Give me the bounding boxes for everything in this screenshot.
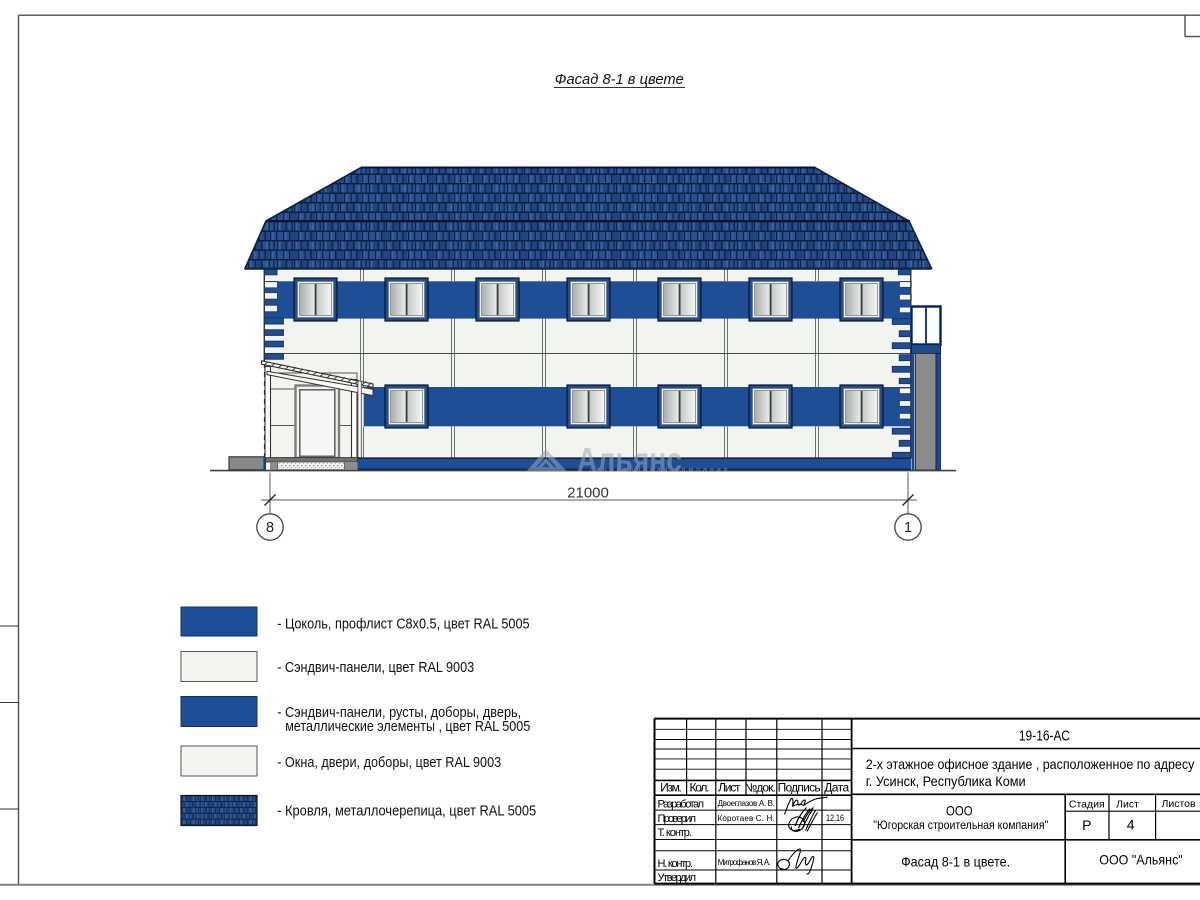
- svg-text:Листов: Листов: [1161, 798, 1196, 810]
- svg-text:Т. контр.: Т. контр.: [658, 827, 692, 839]
- svg-text:Н. контр.: Н. контр.: [658, 858, 694, 870]
- svg-text:строительная компания: строительная компания: [590, 467, 731, 474]
- svg-text:Кол.: Кол.: [690, 781, 710, 795]
- svg-text:Утвердил: Утвердил: [658, 872, 697, 884]
- svg-text:"Югорская строительная компани: "Югорская строительная компания": [873, 818, 1048, 832]
- svg-text:Изм.: Изм.: [660, 781, 682, 795]
- svg-text:8: 8: [266, 520, 274, 536]
- svg-text:Митрофанов Я. А.: Митрофанов Я. А.: [718, 858, 771, 867]
- svg-text:ООО: ООО: [946, 802, 973, 818]
- svg-text:1: 1: [904, 520, 912, 536]
- svg-text:Стадия: Стадия: [1069, 799, 1105, 811]
- svg-text:Дата: Дата: [824, 781, 849, 795]
- svg-text:Проверил: Проверил: [658, 813, 697, 825]
- svg-text:- Сэндвич-панели, цвет RAL 900: - Сэндвич-панели, цвет RAL 9003: [277, 659, 474, 676]
- svg-text:№док.: №док.: [744, 781, 775, 795]
- svg-text:21000: 21000: [567, 485, 609, 502]
- svg-text:Фасад 8-1 в цвете.: Фасад 8-1 в цвете.: [901, 854, 1010, 870]
- svg-text:Р: Р: [1082, 817, 1091, 833]
- svg-text:Подпись: Подпись: [778, 781, 821, 795]
- svg-text:металлические элементы , цвет: металлические элементы , цвет RAL 5005: [285, 718, 530, 735]
- svg-text:- Цоколь, профлист С8х0.5, цве: - Цоколь, профлист С8х0.5, цвет RAL 5005: [277, 616, 529, 633]
- svg-text:12.16: 12.16: [826, 813, 844, 823]
- svg-text:2-х этажное офисное здание , р: 2-х этажное офисное здание , расположенн…: [866, 757, 1195, 772]
- svg-text:ООО "Альянс": ООО "Альянс": [1099, 852, 1183, 867]
- svg-text:- Кровля, металлочерепица, цве: - Кровля, металлочерепица, цвет RAL 5005: [277, 802, 536, 819]
- svg-text:4: 4: [1127, 816, 1135, 832]
- svg-text:- Окна, двери, доборы, цвет RA: - Окна, двери, доборы, цвет RAL 9003: [277, 754, 501, 771]
- svg-text:19-16-АС: 19-16-АС: [1019, 729, 1070, 745]
- svg-text:Лист: Лист: [1116, 799, 1139, 811]
- svg-text:Лист: Лист: [718, 781, 741, 795]
- svg-text:Коротаев С. Н.: Коротаев С. Н.: [718, 814, 775, 823]
- svg-text:г. Усинск, Республика Коми: г. Усинск, Республика Коми: [866, 774, 1026, 789]
- svg-text:Разработал: Разработал: [658, 798, 705, 810]
- svg-text:Фасад 8-1 в цвете: Фасад 8-1 в цвете: [555, 71, 684, 88]
- svg-text:Двоеглазов А. В.: Двоеглазов А. В.: [718, 799, 775, 808]
